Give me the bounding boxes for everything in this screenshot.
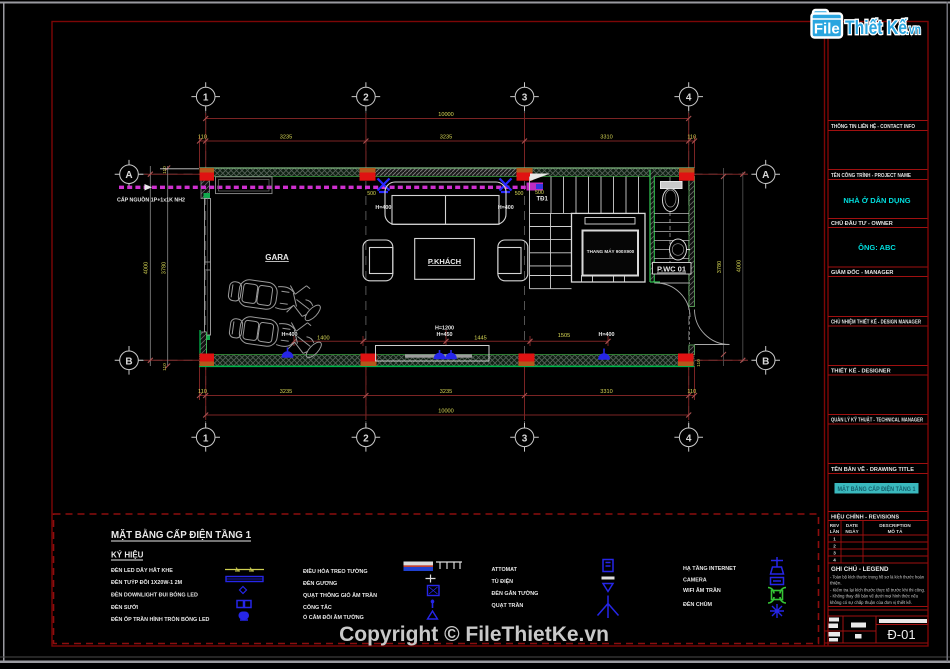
svg-text:CÔNG TẮC: CÔNG TẮC <box>303 603 332 611</box>
svg-text:3235: 3235 <box>440 389 452 395</box>
svg-text:1: 1 <box>203 93 209 104</box>
svg-text:H=400: H=400 <box>375 205 391 211</box>
svg-text:H=1200: H=1200 <box>435 326 454 332</box>
svg-text:Thiết Kế: Thiết Kế <box>845 17 907 39</box>
svg-text:ĐÈN DOWNLIGHT ĐUI BÓNG LED: ĐÈN DOWNLIGHT ĐUI BÓNG LED <box>111 591 198 599</box>
svg-text:QUẠT TRẦN: QUẠT TRẦN <box>492 602 524 609</box>
svg-text:B: B <box>762 356 769 367</box>
svg-text:ĐÈN GƯƠNG: ĐÈN GƯƠNG <box>303 579 337 587</box>
svg-text:QUẠT THÔNG GIÓ ÂM TRẦN: QUẠT THÔNG GIÓ ÂM TRẦN <box>303 591 377 599</box>
svg-text:ĐÈN LED DÂY HẮT KHE: ĐÈN LED DÂY HẮT KHE <box>111 566 173 574</box>
svg-text:thiện.: thiện. <box>830 581 842 587</box>
svg-text:REV: REV <box>830 523 840 528</box>
svg-text:P.KHÁCH: P.KHÁCH <box>428 257 461 266</box>
svg-text:ĐÈN SƯỞI: ĐÈN SƯỞI <box>111 603 139 611</box>
svg-text:3235: 3235 <box>440 135 452 141</box>
svg-text:GARA: GARA <box>265 253 289 262</box>
svg-text:110: 110 <box>198 389 207 395</box>
svg-text:1400: 1400 <box>317 335 329 341</box>
svg-text:.vn: .vn <box>906 21 921 37</box>
svg-text:10000: 10000 <box>438 409 454 415</box>
svg-text:QUẢN LÝ KỸ THUẬT - TECHNICAL M: QUẢN LÝ KỸ THUẬT - TECHNICAL MANAGER <box>831 417 923 424</box>
svg-text:10000: 10000 <box>438 112 454 118</box>
svg-text:ĐÈN TUÝP ĐÔI 1X20W-1 2M: ĐÈN TUÝP ĐÔI 1X20W-1 2M <box>111 578 183 586</box>
svg-text:110: 110 <box>198 135 207 141</box>
svg-text:3: 3 <box>522 93 528 104</box>
svg-text:3: 3 <box>522 433 528 444</box>
svg-text:CHỦ ĐẦU TƯ - OWNER: CHỦ ĐẦU TƯ - OWNER <box>831 220 893 227</box>
svg-text:ĐÈN CHÙM: ĐÈN CHÙM <box>683 600 713 608</box>
svg-text:CAMERA: CAMERA <box>683 578 707 584</box>
svg-text:ÔNG: ABC: ÔNG: ABC <box>858 243 896 252</box>
svg-text:A: A <box>125 170 132 181</box>
svg-text:110: 110 <box>162 363 168 371</box>
svg-text:2: 2 <box>363 93 369 104</box>
svg-text:H=450: H=450 <box>436 332 452 338</box>
svg-text:CHỦ NHIỆM THIẾT KẾ - DESIGN MA: CHỦ NHIỆM THIẾT KẾ - DESIGN MANAGER <box>831 318 921 326</box>
svg-text:Copyright © FileThietKe.vn: Copyright © FileThietKe.vn <box>339 623 609 646</box>
svg-text:NHÀ Ở DÂN DỤNG: NHÀ Ở DÂN DỤNG <box>843 196 910 205</box>
svg-text:ĐÈN ỐP TRẦN HÌNH TRÒN BÓNG LED: ĐÈN ỐP TRẦN HÌNH TRÒN BÓNG LED <box>111 615 210 623</box>
svg-text:HIỆU CHỈNH - REVISIONS: HIỆU CHỈNH - REVISIONS <box>831 513 899 521</box>
svg-text:Đ-01: Đ-01 <box>887 627 915 642</box>
svg-text:NGÀY: NGÀY <box>845 528 858 534</box>
svg-text:File: File <box>814 21 840 38</box>
svg-text:3780: 3780 <box>162 262 168 274</box>
svg-text:DATE: DATE <box>846 523 858 528</box>
svg-text:500: 500 <box>535 190 544 196</box>
svg-text:500: 500 <box>367 191 376 197</box>
svg-text:GIÁM ĐỐC - MANAGER: GIÁM ĐỐC - MANAGER <box>831 269 893 276</box>
svg-text:3: 3 <box>833 551 836 556</box>
svg-text:4: 4 <box>686 433 692 444</box>
svg-text:TÊN BẢN VẼ - DRAWING TITLE: TÊN BẢN VẼ - DRAWING TITLE <box>831 465 914 473</box>
svg-text:HẠ TẦNG INTERNET: HẠ TẦNG INTERNET <box>683 565 737 572</box>
svg-text:3235: 3235 <box>280 135 292 141</box>
svg-text:Ổ CẮM ĐÔI ÂM TƯỜNG: Ổ CẮM ĐÔI ÂM TƯỜNG <box>303 613 364 621</box>
svg-text:4000: 4000 <box>736 260 742 272</box>
svg-text:3780: 3780 <box>717 261 723 273</box>
svg-text:1: 1 <box>833 537 836 542</box>
svg-text:4: 4 <box>833 558 836 563</box>
svg-text:TỦ ĐIỆN: TỦ ĐIỆN <box>492 577 514 585</box>
svg-text:ATTOMAT: ATTOMAT <box>492 567 518 573</box>
svg-text:- Kiểm tra lại kích thước thực: - Kiểm tra lại kích thước thực tế trước … <box>830 587 925 594</box>
svg-text:B: B <box>125 356 132 367</box>
svg-text:110: 110 <box>696 359 702 367</box>
svg-text:1: 1 <box>203 433 209 444</box>
svg-text:2: 2 <box>363 433 369 444</box>
svg-text:1505: 1505 <box>558 333 570 339</box>
svg-text:THIẾT KẾ - DESIGNER: THIẾT KẾ - DESIGNER <box>831 368 891 375</box>
svg-text:500: 500 <box>515 191 524 197</box>
svg-text:P.WC 01: P.WC 01 <box>657 265 686 274</box>
svg-text:LẦN: LẦN <box>830 528 840 534</box>
svg-text:- Toàn bộ kích thước trong hồ: - Toàn bộ kích thước trong hồ sơ là kích… <box>830 575 924 581</box>
svg-text:không có sự chấp thuận của đơn: không có sự chấp thuận của đơn vị thiết … <box>830 599 912 606</box>
svg-text:3235: 3235 <box>280 389 292 395</box>
svg-text:110: 110 <box>162 166 168 174</box>
svg-text:KÝ HIỆU: KÝ HIỆU <box>111 551 144 560</box>
svg-text:MÔ TẢ: MÔ TẢ <box>888 527 903 534</box>
svg-text:THANG MÁY 900X900: THANG MÁY 900X900 <box>587 248 635 254</box>
svg-text:TÊN CÔNG TRÌNH - PROJECT NAME: TÊN CÔNG TRÌNH - PROJECT NAME <box>831 171 911 179</box>
svg-text:- Không thay đổi bản vẽ dưới m: - Không thay đổi bản vẽ dưới mọi hình th… <box>830 593 918 600</box>
svg-text:CẤP NGUỒN 1P+1x1K NH2: CẤP NGUỒN 1P+1x1K NH2 <box>117 197 185 204</box>
svg-text:THÔNG TIN LIÊN HỆ - CONTACT IN: THÔNG TIN LIÊN HỆ - CONTACT INFO <box>831 122 916 130</box>
svg-text:H=400: H=400 <box>598 332 614 338</box>
svg-text:ĐÈN GẮN TƯỜNG: ĐÈN GẮN TƯỜNG <box>492 589 539 597</box>
svg-text:ĐIỀU HÒA TREO TƯỜNG: ĐIỀU HÒA TREO TƯỜNG <box>303 567 368 575</box>
svg-text:TĐ1: TĐ1 <box>537 197 549 203</box>
svg-text:DESCRIPTION: DESCRIPTION <box>879 523 911 528</box>
svg-text:A: A <box>762 170 769 181</box>
svg-text:1445: 1445 <box>474 335 486 341</box>
svg-text:GHI CHÚ - LEGEND: GHI CHÚ - LEGEND <box>831 566 889 573</box>
svg-text:WIFI ÂM TRẦN: WIFI ÂM TRẦN <box>683 587 721 594</box>
svg-text:MẶT BẰNG CẤP ĐIỆN TẦNG 1: MẶT BẰNG CẤP ĐIỆN TẦNG 1 <box>838 485 917 493</box>
svg-text:110: 110 <box>687 389 696 395</box>
svg-text:4000: 4000 <box>144 262 150 274</box>
svg-text:3310: 3310 <box>600 389 612 395</box>
svg-text:2: 2 <box>833 544 836 549</box>
svg-text:4: 4 <box>686 93 692 104</box>
svg-text:MẶT BẰNG CẤP ĐIỆN TẦNG 1: MẶT BẰNG CẤP ĐIỆN TẦNG 1 <box>111 528 251 541</box>
svg-text:110: 110 <box>687 135 696 141</box>
svg-text:3310: 3310 <box>600 135 612 141</box>
